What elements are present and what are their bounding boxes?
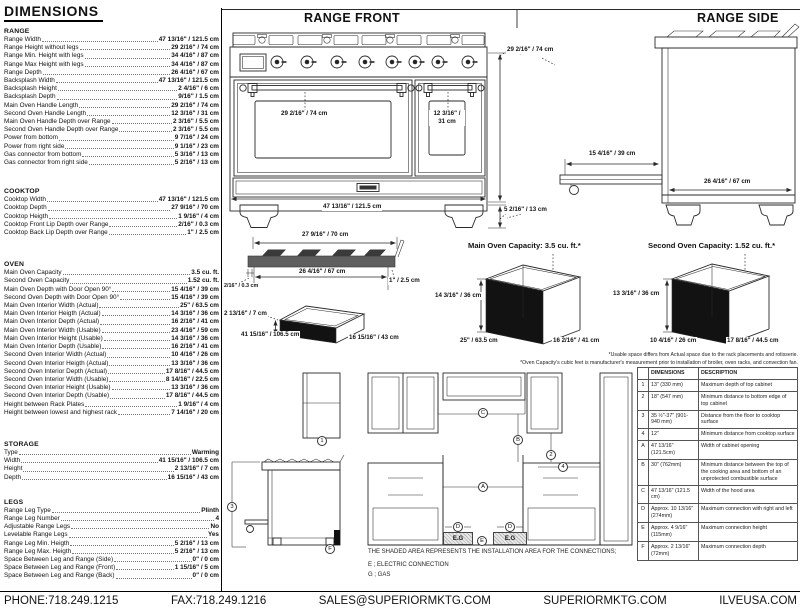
spec-label: Height [4,465,22,473]
spec-row: Cooktop Width 47 13/16" / 121.5 cm [4,196,219,204]
spec-row: Range Min. Height with legs 34 4/16" / 8… [4,52,219,60]
spec-label: Backsplash Depth [4,93,56,101]
callout-2: 2 [546,450,556,460]
cooktop-backlip-label: 1" / 2.5 cm [388,277,421,285]
spec-row: Backsplash Width 47 13/16" / 121.5 cm [4,77,219,85]
spec-rows: Range Width 47 13/16" / 121.5 cm Range H… [4,36,219,167]
second-handle-line1: 12 3/16" / [433,110,460,117]
section-title: OVEN [4,261,219,269]
spec-section-storage: STORAGE Type Warming Width 41 15/16" / 1… [4,441,219,482]
spec-value: 17 8/16" / 44.5 cm [166,392,219,400]
storage-width-label: 41 15/16" / 106.5 cm [240,331,300,339]
spec-row: Space Between Leg and Range (Front) 1 15… [4,564,219,572]
spec-row: Main Oven Interior Depth (Usable) 16 2/1… [4,343,219,351]
dimensions-spec-sheet: DIMENSIONS RANGE Range Width 47 13/16" /… [0,0,800,610]
callout-f: F [325,544,335,554]
spec-label: Main Oven Handle Depth over Range [4,118,111,126]
spec-label: Cooktop Depth [4,204,47,212]
spec-row: Range Leg Type Plinth [4,507,219,515]
page-title: DIMENSIONS [4,3,103,22]
spec-label: Second Oven Handle Depth over Range [4,126,118,134]
dotted-leader [82,156,173,157]
spec-row: Second Oven Interior Depth (Actual) 17 8… [4,368,219,376]
spec-row: Adjustable Range Legs No [4,523,219,531]
cell-description: Maximum connection with right and left [699,504,798,523]
footer-contact-item: SALES@SUPERIORMKTG.COM [319,595,491,607]
spec-label: Second Oven Handle Length [4,110,86,118]
spec-label: Second Oven Interior Heigth (Actual) [4,360,108,368]
spec-row: Second Oven Interior Heigth (Actual) 13 … [4,360,219,368]
dotted-leader [70,283,186,284]
section-title: RANGE [4,28,219,36]
dotted-leader [104,340,170,341]
spec-label: Power from right side [4,143,64,151]
spec-label: Height between lowest and highest rack [4,409,117,417]
cell-dimension: 30" (762mm) [649,459,699,485]
spec-row: Range Depth 26 4/16" / 67 cm [4,69,219,77]
side-depth-label: 26 4/16" / 67 cm [703,178,751,186]
spec-value: 0" / 0 cm [193,572,219,580]
dotted-leader [108,373,165,374]
spec-value: 41 15/16" / 106.5 cm [159,457,219,465]
callout-3: 3 [227,502,237,512]
cell-description: Maximum connection height [699,523,798,542]
install-note: THE SHADED AREA REPRESENTS THE INSTALLAT… [368,549,616,555]
spec-label: Main Oven Interior Width (Actual) [4,302,98,310]
dotted-leader [69,537,207,538]
spec-label: Cooktop Width [4,196,46,204]
spec-label: Backsplash Width [4,77,55,85]
dotted-leader [85,66,171,67]
dotted-leader [59,140,174,141]
dotted-leader [109,234,186,235]
spec-label: Adjustable Range Legs [4,523,70,531]
spec-rows: Cooktop Width 47 13/16" / 121.5 cm Cookt… [4,196,219,237]
dotted-leader [114,561,191,562]
dotted-leader [80,49,171,50]
cell-id: 1 [638,379,649,391]
spec-label: Range Leg Number [4,515,60,523]
spec-rows: Type Warming Width 41 15/16" / 106.5 cm … [4,449,219,482]
cooktop-width-label: 27 9/16" / 70 cm [301,231,349,239]
main-oven-depth-label: 16 2/16" / 41 cm [552,337,600,345]
spec-row: Gas connector from bottom 5 3/16" / 13 c… [4,151,219,159]
section-title: LEGS [4,499,219,507]
spec-value: No [210,523,219,531]
spec-row: Main Oven Handle Depth over Range 2 3/16… [4,118,219,126]
second-oven-capacity-title: Second Oven Capacity: 1.52 cu. ft.* [648,241,775,250]
cell-id: F [638,541,649,560]
spec-label: Gas connector from bottom [4,151,81,159]
spec-row: Range Height without legs 29 2/16" / 74 … [4,44,219,52]
dotted-leader [85,58,171,59]
cell-dimension: 12" [649,429,699,441]
cell-dimension: 35 ½"-37" (901-940 mm) [649,410,699,429]
cell-dimension: Approx. 2 13/16" (72mm) [649,541,699,560]
spec-label: Range Leg Max. Heigth [4,548,71,556]
cell-description: Width of cabinet opening [699,441,798,460]
table-body: 1 13" (330 mm) Maximum depth of top cabi… [638,379,798,560]
electric-gas-area-left: E.G [443,532,473,545]
callout-4: 4 [558,462,568,472]
spec-value: 29 2/16" / 74 cm [171,102,219,110]
callout-b: B [513,435,523,445]
dotted-leader [109,365,170,366]
table-row: B 30" (762mm) Minimum distance between t… [638,459,798,485]
main-handle-label: 29 2/16" / 74 cm [280,110,328,118]
spec-label: Range Max Height with legs [4,61,84,69]
spec-label: Second Oven Interior Depth (Actual) [4,368,107,376]
spec-label: Second Oven Capacity [4,277,69,285]
spec-value: 12 3/16" / 31 cm [171,110,219,118]
spec-label: Main Oven Capacity [4,269,62,277]
cooktop-storage-oven-drawings [222,232,800,358]
dotted-leader [72,553,174,554]
col-description-header: DESCRIPTION [699,368,798,380]
spec-label: Main Oven Interior Width (Usable) [4,327,101,335]
table-row: 4 12" Minimum distance from cooktop surf… [638,429,798,441]
cell-id: B [638,459,649,485]
spec-label: Space Between Leg and Range (Back) [4,572,115,580]
second-oven-depth-label: 17 8/16" / 44.5 cm [726,337,779,345]
spec-value: 1" / 2.5 cm [187,229,219,237]
dotted-leader [70,545,173,546]
spec-label: Cooktop Back Lip Depth over Range [4,229,108,237]
spec-label: Main Oven Handle Length [4,102,78,110]
spec-row: Main Oven Interior Width (Usable) 23 4/1… [4,327,219,335]
spec-value: 0" / 0 cm [193,556,219,564]
spec-value: 25" / 63.5 cm [180,302,219,310]
spec-label: Space Between Leg and Range (Side) [4,556,113,564]
spec-value: 5 2/16" / 13 cm [175,540,219,548]
spec-value: 13 3/16" / 36 cm [171,384,219,392]
storage-height-label: 2 13/16" / 7 cm [223,310,268,318]
footnote-usable-space: *Usable space differs from Actual space … [428,352,798,360]
spec-value: 23 4/16" / 59 cm [171,327,219,335]
spec-value: 16 2/16" / 41 cm [171,343,219,351]
cell-id: D [638,504,649,523]
spec-row: Main Oven Depth with Door Open 90° 15 4/… [4,286,219,294]
dotted-leader [57,99,178,100]
spec-label: Range Depth [4,69,42,77]
spec-row: Second Oven Depth with Door Open 90° 15 … [4,294,219,302]
spec-label: Backsplash Height [4,85,57,93]
dotted-leader [112,291,170,292]
front-width-label: 47 13/16" / 121.5 cm [322,203,382,211]
front-legs-label: 5 2/16" / 13 cm [503,206,548,214]
spec-row: Levelable Range Legs Yes [4,531,219,539]
dotted-leader [102,332,171,333]
spec-row: Height between Rack Plates 1 9/16" / 4 c… [4,401,219,409]
spec-value: 1 9/16" / 4 cm [178,401,219,409]
spec-value: 15 4/16" / 39 cm [171,286,219,294]
dotted-leader [100,324,170,325]
spec-row: Type Warming [4,449,219,457]
spec-value: 2 13/16" / 7 cm [175,465,219,473]
second-oven-height-label: 13 3/16" / 36 cm [612,290,660,298]
side-door-label: 15 4/16" / 39 cm [588,150,636,158]
footer-contact-item: PHONE:718.249.1215 [4,595,118,607]
dotted-leader [65,148,173,149]
spec-section-legs: LEGS Range Leg Type Plinth Range Leg Num… [4,499,219,581]
second-oven-width-label: 10 4/16" / 26 cm [649,337,697,345]
spec-label: Cooktop Front Lip Depth over Range [4,221,108,229]
spec-column: DIMENSIONS RANGE Range Width 47 13/16" /… [4,3,219,581]
spec-value: 9 7/16" / 24 cm [175,134,219,142]
spec-value: 10 4/16" / 26 cm [171,351,219,359]
spec-label: Range Height without legs [4,44,79,52]
dotted-leader [89,164,174,165]
contact-footer: PHONE:718.249.1215 FAX:718.249.1216 SALE… [0,591,800,607]
dotted-leader [49,218,177,219]
cell-id: 2 [638,391,649,410]
spec-row: Range Width 47 13/16" / 121.5 cm [4,36,219,44]
spec-section-cooktop: COOKTOP Cooktop Width 47 13/16" / 121.5 … [4,188,219,237]
footnote-capacity: *Oven Capacity's cubic feet is manufactu… [428,360,798,368]
spec-value: 47 13/16" / 121.5 cm [159,77,219,85]
spec-label: Main Oven Interior Depth (Usable) [4,343,101,351]
spec-value: 7 14/16" / 20 cm [171,409,219,417]
section-title: STORAGE [4,441,219,449]
dotted-leader [102,348,170,349]
spec-label: Cooktop Heigth [4,213,48,221]
spec-row: Second Oven Interior Width (Usable) 8 14… [4,376,219,384]
dotted-leader [63,274,191,275]
table-row: 2 18" (547 mm) Minimum distance to botto… [638,391,798,410]
spec-row: Second Oven Interior Height (Usable) 13 … [4,384,219,392]
front-height-label: 29 2/16" / 74 cm [506,46,554,54]
spec-label: Width [4,457,20,465]
spec-row: Second Oven Handle Depth over Range 2 3/… [4,126,219,134]
cell-dimension: 47 13/16" (121.5cm) [649,441,699,460]
spec-value: 14 3/16" / 36 cm [171,335,219,343]
spec-label: Depth [4,474,21,482]
spec-label: Second Oven Interior Width (Usable) [4,376,108,384]
electric-legend: E ; ELECTRIC CONNECTION [368,562,449,568]
spec-value: Yes [208,531,219,539]
dotted-leader [56,82,158,83]
spec-label: Second Oven Interior Depth (Usable) [4,392,109,400]
spec-label: Second Oven Interior Width (Actual) [4,351,106,359]
spec-row: Main Oven Interior Height (Usable) 14 3/… [4,335,219,343]
dotted-leader [21,462,157,463]
cell-description: Maximum connection depth [699,541,798,560]
spec-row: Range Leg Max. Heigth 5 2/16" / 13 cm [4,548,219,556]
cell-description: Maximum depth of top cabinet [699,379,798,391]
col-dimensions-header: DIMENSIONS [649,368,699,380]
section-title: COOKTOP [4,188,219,196]
spec-row: Space Between Leg and Range (Back) 0" / … [4,572,219,580]
spec-row: Main Oven Interior Depth (Actual) 16 2/1… [4,318,219,326]
spec-label: Power from bottom [4,134,58,142]
table-header-row: DIMENSIONS DESCRIPTION [638,368,798,380]
dotted-leader [42,41,158,42]
dotted-leader [47,201,158,202]
spec-value: 29 2/16" / 74 cm [171,44,219,52]
spec-row: Range Leg Min. Heigth 5 2/16" / 13 cm [4,540,219,548]
spec-section-range: RANGE Range Width 47 13/16" / 121.5 cm R… [4,28,219,167]
dotted-leader [119,131,172,132]
spec-label: Type [4,449,18,457]
spec-value: 16 2/16" / 41 cm [171,318,219,326]
spec-row: Second Oven Interior Depth (Usable) 17 8… [4,392,219,400]
spec-label: Range Leg Type [4,507,51,515]
spec-row: Gas connector from right side 5 2/16" / … [4,159,219,167]
dotted-leader [52,512,200,513]
footer-contact-item: FAX:718.249.1216 [171,595,266,607]
spec-label: Range Width [4,36,41,44]
spec-label: Space Between Leg and Range (Front) [4,564,115,572]
dotted-leader [61,520,215,521]
dotted-leader [87,115,170,116]
spec-value: 34 4/16" / 87 cm [171,61,219,69]
spec-label: Height between Rack Plates [4,401,84,409]
spec-row: Second Oven Interior Width (Actual) 10 4… [4,351,219,359]
spec-value: 5 2/16" / 13 cm [175,159,219,167]
dotted-leader [112,123,172,124]
spec-value: 2/16" / 0.3 cm [178,221,219,229]
spec-row: Power from right side 9 1/16" / 23 cm [4,143,219,151]
spec-row: Space Between Leg and Range (Side) 0" / … [4,556,219,564]
spec-value: Plinth [201,507,219,515]
cell-description: Minimum distance to bottom edge of top c… [699,391,798,410]
spec-section-oven: OVEN Main Oven Capacity 3.5 cu. ft. Seco… [4,261,219,417]
table-row: A 47 13/16" (121.5cm) Width of cabinet o… [638,441,798,460]
spec-row: Main Oven Interior Heigth (Actual) 14 3/… [4,310,219,318]
spec-row: Second Oven Handle Length 12 3/16" / 31 … [4,110,219,118]
range-front-side-drawing [222,8,800,252]
spec-value: 1 15/16" / 5 cm [175,564,219,572]
spec-row: Main Oven Interior Width (Actual) 25" / … [4,302,219,310]
spec-value: 2 4/16" / 6 cm [178,85,219,93]
spec-value: Warming [192,449,219,457]
cell-id: 3 [638,410,649,429]
spec-value: 47 13/16" / 121.5 cm [159,196,219,204]
spec-label: Main Oven Interior Heigth (Actual) [4,310,101,318]
spec-value: 14 3/16" / 36 cm [171,310,219,318]
spec-label: Levelable Range Legs [4,531,68,539]
spec-label: Second Oven Depth with Door Open 90° [4,294,119,302]
spec-row: Second Oven Capacity 1.52 cu. ft. [4,277,219,285]
spec-row: Height between lowest and highest rack 7… [4,409,219,417]
spec-rows: Range Leg Type Plinth Range Leg Number 4… [4,507,219,581]
cell-dimension: Approx. 10 13/16" (274mm) [649,504,699,523]
storage-depth-label: 16 15/16" / 43 cm [348,334,400,342]
spec-value: 2 3/16" / 5.5 cm [173,126,219,134]
spec-row: Main Oven Capacity 3.5 cu. ft. [4,269,219,277]
dotted-leader [109,381,164,382]
cell-dimension: 18" (547 mm) [649,391,699,410]
table-row: 3 35 ½"-37" (901-940 mm) Distance from t… [638,410,798,429]
spec-row: Power from bottom 9 7/16" / 24 cm [4,134,219,142]
spec-row: Cooktop Depth 27 9/16" / 70 cm [4,204,219,212]
spec-row: Height 2 13/16" / 7 cm [4,465,219,473]
dotted-leader [102,315,171,316]
callout-d-right: D [505,522,515,532]
callout-a: A [478,482,488,492]
spec-row: Cooktop Heigth 1 9/16" / 4 cm [4,213,219,221]
spec-value: 5 3/16" / 13 cm [175,151,219,159]
spec-row: Width 41 15/16" / 106.5 cm [4,457,219,465]
main-oven-width-label: 25" / 63.5 cm [459,337,499,345]
cell-id: 4 [638,429,649,441]
dotted-leader [19,454,191,455]
spec-label: Main Oven Interior Depth (Actual) [4,318,99,326]
spec-value: 4 [215,515,219,523]
spec-value: 1.52 cu. ft. [188,277,219,285]
gas-legend: G ; GAS [368,572,390,578]
cell-description: Width of the hood area [699,485,798,504]
spec-rows: Main Oven Capacity 3.5 cu. ft. Second Ov… [4,269,219,417]
callout-1: 1 [317,436,327,446]
footer-contact-item: ILVEUSA.COM [719,595,797,607]
cell-description: Minimum distance between the top of the … [699,459,798,485]
dotted-leader [71,528,209,529]
col-id-header [638,368,649,380]
table-row: 1 13" (330 mm) Maximum depth of top cabi… [638,379,798,391]
main-oven-height-label: 14 3/16" / 36 cm [434,292,482,300]
spec-value: 34 4/16" / 87 cm [171,52,219,60]
cell-description: Minimum distance from cooktop surface [699,429,798,441]
dotted-leader [116,578,192,579]
dotted-leader [109,226,177,227]
table-row: F Approx. 2 13/16" (72mm) Maximum connec… [638,541,798,560]
spec-value: 8 14/16" / 22.5 cm [166,376,219,384]
spec-value: 9/16" / 1.5 cm [178,93,219,101]
install-dimensions-table: DIMENSIONS DESCRIPTION 1 13" (330 mm) Ma… [637,367,798,561]
spec-value: 47 13/16" / 121.5 cm [159,36,219,44]
electric-gas-area-right: E.G [493,532,527,545]
callout-d-left: D [453,522,463,532]
spec-value: 17 8/16" / 44.5 cm [166,368,219,376]
spec-label: Range Leg Min. Heigth [4,540,69,548]
spec-row: Main Oven Handle Length 29 2/16" / 74 cm [4,102,219,110]
spec-value: 5 2/16" / 13 cm [175,548,219,556]
dotted-leader [23,471,173,472]
dotted-leader [107,357,170,358]
table-row: C 47 13/16" (121.5 cm) Width of the hood… [638,485,798,504]
table-row: D Approx. 10 13/16" (274mm) Maximum conn… [638,504,798,523]
spec-value: 26 4/16" / 67 cm [171,69,219,77]
dotted-leader [120,299,170,300]
dotted-leader [99,307,179,308]
dotted-leader [85,406,177,407]
table-row: E Approx. 4 9/16" (115mm) Maximum connec… [638,523,798,542]
dotted-leader [79,107,170,108]
main-oven-capacity-title: Main Oven Capacity: 3.5 cu. ft.* [468,241,581,250]
footer-contact-item: SUPERIORMKTG.COM [543,595,666,607]
spec-value: 15 4/16" / 39 cm [171,294,219,302]
spec-value: 2 3/16" / 5.5 cm [173,118,219,126]
callout-e: E [477,536,487,546]
cooktop-frontlip-label: 2/16" / 0.3 cm [223,283,259,290]
spec-row: Depth 16 15/16" / 43 cm [4,474,219,482]
cell-description: Distance from the floor to cooktop surfa… [699,410,798,429]
cell-dimension: 47 13/16" (121.5 cm) [649,485,699,504]
cooktop-inner-label: 26 4/16" / 67 cm [298,268,346,276]
spec-value: 9 1/16" / 23 cm [175,143,219,151]
cell-id: C [638,485,649,504]
spec-row: Range Max Height with legs 34 4/16" / 87… [4,61,219,69]
spec-label: Gas connector from right side [4,159,88,167]
capacity-footnotes: *Usable space differs from Actual space … [428,352,798,367]
spec-label: Main Oven Depth with Door Open 90° [4,286,111,294]
spec-row: Backsplash Height 2 4/16" / 6 cm [4,85,219,93]
cell-dimension: 13" (330 mm) [649,379,699,391]
spec-label: Second Oven Interior Height (Usable) [4,384,111,392]
dotted-leader [48,210,171,211]
spec-row: Range Leg Number 4 [4,515,219,523]
